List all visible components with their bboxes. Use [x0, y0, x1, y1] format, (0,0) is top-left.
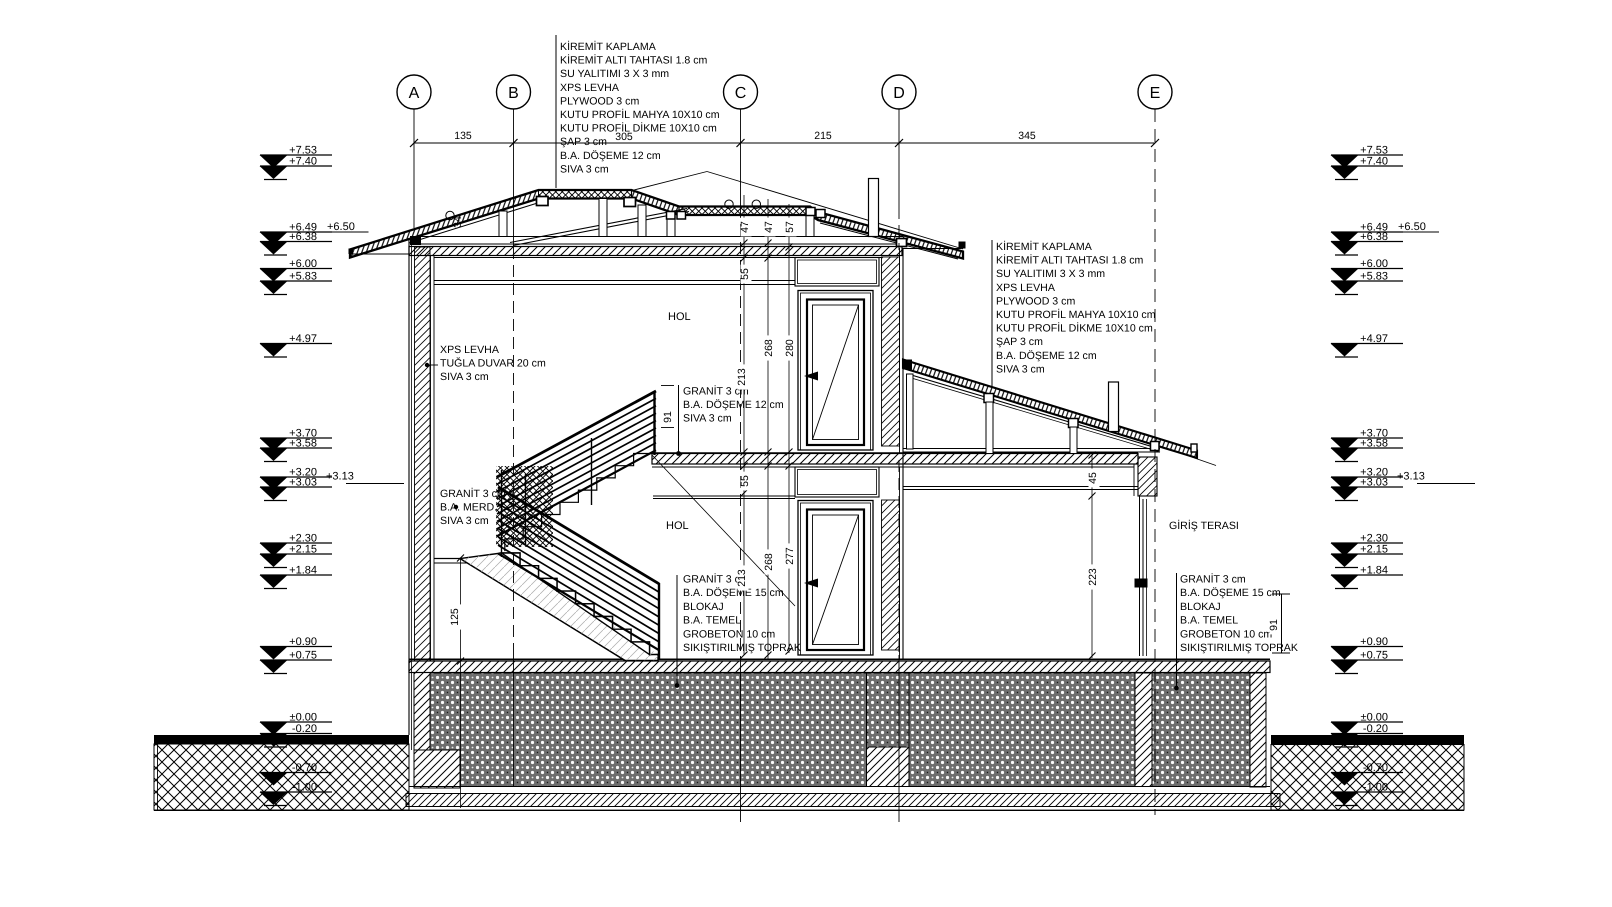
svg-text:213: 213: [736, 569, 748, 587]
svg-text:SU YALITIMI 3 X 3 mm: SU YALITIMI 3 X 3 mm: [996, 268, 1105, 280]
svg-text:+6.00: +6.00: [289, 258, 317, 270]
svg-text:SIKIŞTIRILMIŞ TOPRAK: SIKIŞTIRILMIŞ TOPRAK: [1180, 642, 1298, 654]
svg-text:HOL: HOL: [668, 311, 691, 323]
svg-text:+7.40: +7.40: [289, 156, 317, 168]
svg-text:+0.75: +0.75: [289, 650, 317, 662]
svg-text:277: 277: [784, 547, 796, 565]
svg-text:+2.15: +2.15: [289, 544, 317, 556]
svg-text:55: 55: [739, 268, 751, 280]
svg-text:KİREMİT KAPLAMA: KİREMİT KAPLAMA: [996, 240, 1093, 253]
svg-text:+3.58: +3.58: [1360, 438, 1388, 450]
svg-text:280: 280: [784, 339, 796, 357]
svg-text:E: E: [1150, 85, 1161, 102]
svg-text:34: 34: [452, 216, 464, 228]
svg-text:KİREMİT KAPLAMA: KİREMİT KAPLAMA: [560, 40, 657, 53]
svg-text:+1.84: +1.84: [1360, 565, 1388, 577]
svg-text:SIKIŞTIRILMIŞ TOPRAK: SIKIŞTIRILMIŞ TOPRAK: [683, 642, 801, 654]
svg-text:-1.00: -1.00: [1363, 782, 1388, 794]
svg-text:-0.70: -0.70: [292, 762, 317, 774]
svg-text:PLYWOOD 3 cm: PLYWOOD 3 cm: [996, 295, 1075, 307]
svg-text:+3.03: +3.03: [1360, 477, 1388, 489]
svg-text:91: 91: [662, 411, 674, 423]
svg-text:B.A. DÖŞEME 15 cm: B.A. DÖŞEME 15 cm: [683, 587, 784, 599]
svg-text:KUTU PROFİL MAHYA 10X10 cm: KUTU PROFİL MAHYA 10X10 cm: [560, 108, 720, 121]
svg-text:+5.83: +5.83: [1360, 271, 1388, 283]
svg-text:55: 55: [739, 475, 751, 487]
svg-text:345: 345: [1018, 130, 1036, 142]
svg-text:45: 45: [1087, 472, 1099, 484]
svg-text:TUĞLA DUVAR 20 cm: TUĞLA DUVAR 20 cm: [440, 357, 546, 370]
svg-text:BLOKAJ: BLOKAJ: [1180, 601, 1221, 613]
svg-text:+3.58: +3.58: [289, 438, 317, 450]
svg-text:+6.50: +6.50: [327, 221, 355, 233]
svg-text:B.A. MERD.: B.A. MERD.: [440, 502, 497, 514]
svg-text:B.A. DÖŞEME 12 cm: B.A. DÖŞEME 12 cm: [996, 350, 1097, 362]
svg-text:XPS LEVHA: XPS LEVHA: [996, 282, 1056, 294]
svg-text:D: D: [893, 85, 905, 102]
svg-text:57: 57: [784, 221, 796, 233]
svg-text:GROBETON 10 cm: GROBETON 10 cm: [683, 628, 775, 640]
svg-text:+0.90: +0.90: [289, 636, 317, 648]
svg-text:B: B: [508, 85, 519, 102]
svg-text:GRANİT 3 cm: GRANİT 3 cm: [1180, 573, 1246, 586]
svg-text:ŞAP 3 cm: ŞAP 3 cm: [996, 336, 1043, 348]
svg-text:47: 47: [763, 221, 775, 233]
svg-text:SIVA 3 cm: SIVA 3 cm: [440, 371, 489, 383]
svg-text:B.A. DÖŞEME 15 cm: B.A. DÖŞEME 15 cm: [1180, 587, 1281, 599]
svg-text:223: 223: [1087, 568, 1099, 586]
svg-text:C: C: [735, 85, 747, 102]
svg-text:GİRİŞ TERASI: GİRİŞ TERASI: [1169, 519, 1239, 532]
svg-text:±0.00: ±0.00: [1361, 712, 1388, 724]
svg-text:+3.13: +3.13: [1397, 471, 1425, 483]
svg-text:47: 47: [739, 221, 751, 233]
svg-text:125: 125: [449, 608, 461, 626]
svg-text:+7.40: +7.40: [1360, 156, 1388, 168]
svg-text:SIVA 3 cm: SIVA 3 cm: [683, 413, 732, 425]
svg-text:SIVA 3 cm: SIVA 3 cm: [440, 515, 489, 527]
svg-text:KUTU PROFİL MAHYA 10X10 cm: KUTU PROFİL MAHYA 10X10 cm: [996, 308, 1156, 321]
svg-text:+5.83: +5.83: [289, 271, 317, 283]
svg-text:+0.75: +0.75: [1360, 650, 1388, 662]
svg-text:SU YALITIMI 3 X 3 mm: SU YALITIMI 3 X 3 mm: [560, 68, 669, 80]
svg-text:+6.38: +6.38: [289, 231, 317, 243]
svg-text:PLYWOOD 3 cm: PLYWOOD 3 cm: [560, 95, 639, 107]
svg-text:213: 213: [736, 368, 748, 386]
svg-text:HOL: HOL: [666, 520, 689, 532]
svg-text:KUTU PROFİL DİKME 10X10 cm: KUTU PROFİL DİKME 10X10 cm: [996, 322, 1153, 335]
svg-text:KİREMİT ALTI TAHTASI 1.8 cm: KİREMİT ALTI TAHTASI 1.8 cm: [996, 254, 1144, 267]
svg-text:B.A. TEMEL: B.A. TEMEL: [1180, 615, 1238, 627]
svg-text:268: 268: [763, 339, 775, 357]
svg-text:+6.00: +6.00: [1360, 258, 1388, 270]
svg-text:+4.97: +4.97: [1360, 333, 1388, 345]
svg-text:-0.20: -0.20: [1363, 723, 1388, 735]
svg-text:B.A. DÖŞEME 12 cm: B.A. DÖŞEME 12 cm: [560, 150, 661, 162]
svg-text:268: 268: [763, 553, 775, 571]
svg-text:-0.20: -0.20: [292, 723, 317, 735]
svg-text:+6.50: +6.50: [1398, 221, 1426, 233]
svg-text:B.A. DÖŞEME 12 cm: B.A. DÖŞEME 12 cm: [683, 399, 784, 411]
svg-text:XPS LEVHA: XPS LEVHA: [560, 82, 620, 94]
svg-text:+3.13: +3.13: [326, 471, 354, 483]
svg-text:±0.00: ±0.00: [290, 712, 317, 724]
svg-text:XPS LEVHA: XPS LEVHA: [440, 344, 500, 356]
svg-text:KİREMİT ALTI TAHTASI 1.8 cm: KİREMİT ALTI TAHTASI 1.8 cm: [560, 54, 708, 67]
svg-text:-1.00: -1.00: [292, 782, 317, 794]
svg-text:BLOKAJ: BLOKAJ: [683, 601, 724, 613]
svg-text:SIVA 3 cm: SIVA 3 cm: [560, 163, 609, 175]
svg-text:+4.97: +4.97: [289, 333, 317, 345]
svg-text:+3.03: +3.03: [289, 477, 317, 489]
svg-text:A: A: [409, 85, 420, 102]
svg-text:GROBETON 10 cm: GROBETON 10 cm: [1180, 628, 1272, 640]
svg-text:135: 135: [454, 130, 472, 142]
svg-text:-0.70: -0.70: [1363, 762, 1388, 774]
svg-text:SIVA 3 cm: SIVA 3 cm: [996, 363, 1045, 375]
svg-text:GRANİT 3 cm: GRANİT 3 cm: [440, 487, 506, 500]
svg-text:91: 91: [1268, 619, 1280, 631]
svg-text:KUTU PROFİL DİKME 10X10 cm: KUTU PROFİL DİKME 10X10 cm: [560, 122, 717, 135]
svg-text:+6.38: +6.38: [1360, 231, 1388, 243]
svg-text:B.A. TEMEL: B.A. TEMEL: [683, 615, 741, 627]
svg-text:+1.84: +1.84: [289, 565, 317, 577]
svg-text:+0.90: +0.90: [1360, 636, 1388, 648]
svg-text:ŞAP 3 cm: ŞAP 3 cm: [560, 136, 607, 148]
svg-text:+2.15: +2.15: [1360, 544, 1388, 556]
svg-text:215: 215: [814, 130, 832, 142]
